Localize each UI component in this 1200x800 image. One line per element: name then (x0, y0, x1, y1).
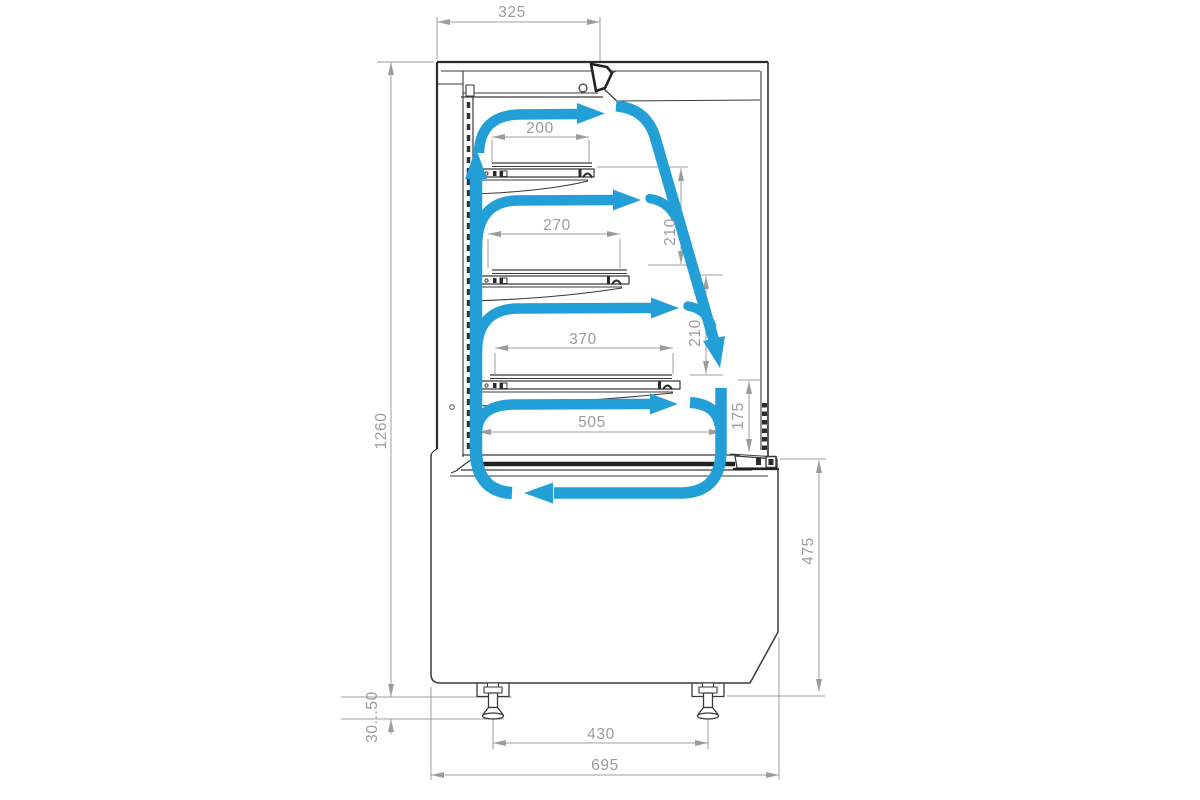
canopy-front-clip (591, 64, 612, 91)
dimension-shelf3-depth (495, 348, 673, 374)
shelf-2 (473, 270, 629, 301)
dim-label-shelf3-depth: 370 (569, 331, 597, 348)
dim-label-gap3: 175 (730, 402, 747, 430)
dim-label-overall-depth: 695 (591, 757, 619, 774)
dim-label-leg-adjust: 30...50 (364, 691, 381, 743)
dim-label-shelf1-depth: 200 (526, 120, 554, 137)
dimension-lines (341, 17, 826, 780)
shelf-1 (473, 163, 594, 194)
dim-label-base-height: 475 (800, 537, 817, 565)
dimension-base-height (727, 459, 826, 696)
adjustable-foot-left (477, 683, 509, 719)
dimension-top-depth (437, 17, 600, 63)
dimension-deck-depth (478, 432, 722, 453)
display-case-outline (431, 62, 779, 719)
arrowhead-left-return-icon (524, 483, 553, 504)
dim-label-top-depth: 325 (498, 4, 526, 21)
arrowhead-right-shelf2-icon (613, 190, 641, 211)
dimension-shelf2-depth (488, 234, 620, 268)
diagram-page: 325 200 270 370 505 210 210 175 1260 475… (0, 0, 1200, 800)
dim-label-deck-depth: 505 (578, 414, 606, 431)
adjustable-foot-right (692, 683, 724, 719)
dimension-overall-height (341, 62, 512, 734)
display-case-airflow-diagram: 325 200 270 370 505 210 210 175 1260 475… (0, 0, 1200, 800)
dim-label-gap1: 210 (662, 218, 679, 246)
dim-label-overall-height: 1260 (373, 413, 390, 450)
dim-label-shelf2-depth: 270 (543, 217, 571, 234)
airflow-branch-deck (477, 404, 650, 433)
rear-air-duct (450, 71, 473, 457)
arrowhead-right-deck-icon (650, 394, 678, 415)
lamp-icon (579, 84, 587, 92)
bottom-deck (450, 454, 779, 476)
arrowhead-right-top-icon (577, 103, 605, 124)
airflow-branch-shelf3 (477, 308, 651, 352)
canopy (437, 64, 618, 102)
dimension-shelf1-depth (492, 137, 589, 162)
arrowhead-right-shelf3-icon (651, 298, 679, 319)
dim-label-leg-spacing: 430 (587, 726, 615, 743)
dim-label-gap2: 210 (687, 319, 704, 347)
